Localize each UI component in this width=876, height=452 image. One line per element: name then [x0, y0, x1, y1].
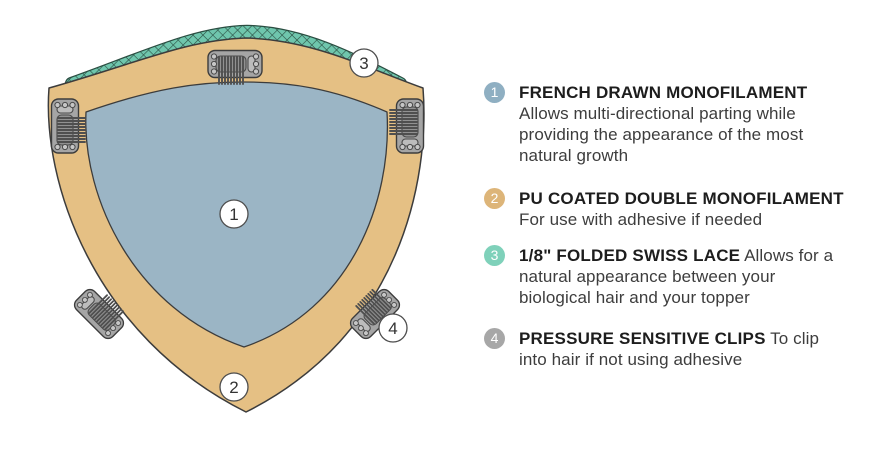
callout-3-number: 3: [359, 54, 368, 73]
legend-title-4: PRESSURE SENSITIVE CLIPS: [519, 329, 766, 348]
legend-description-1: Allows multi-directional parting while p…: [519, 104, 803, 165]
legend-text-1: FRENCH DRAWN MONOFILAMENT Allows multi-d…: [519, 82, 850, 166]
legend-item-pu-coated-monofilament: 2 PU COATED DOUBLE MONOFILAMENT For use …: [484, 188, 856, 230]
callout-3-swiss-lace: 3: [350, 49, 378, 77]
legend-badge-1: 1: [484, 82, 505, 103]
legend-description-2: For use with adhesive if needed: [519, 210, 762, 229]
legend: 1 FRENCH DRAWN MONOFILAMENT Allows multi…: [484, 82, 856, 370]
legend-title-1: FRENCH DRAWN MONOFILAMENT: [519, 82, 850, 103]
legend-item-folded-swiss-lace: 3 1/8" FOLDED SWISS LACE Allows for a na…: [484, 245, 856, 308]
topper-construction-page: 1 2 3 4 1 FRENCH DRAWN MONOFILAMENT Allo…: [0, 0, 876, 452]
legend-title-2: PU COATED DOUBLE MONOFILAMENT: [519, 188, 850, 209]
legend-text-4: PRESSURE SENSITIVE CLIPS To clip into ha…: [519, 328, 850, 370]
legend-text-3: 1/8" FOLDED SWISS LACE Allows for a natu…: [519, 245, 850, 308]
callout-2-pu-base: 2: [220, 373, 248, 401]
callout-4-clip: 4: [379, 314, 407, 342]
legend-badge-2: 2: [484, 188, 505, 209]
legend-item-french-drawn-monofilament: 1 FRENCH DRAWN MONOFILAMENT Allows multi…: [484, 82, 856, 166]
callout-2-number: 2: [229, 378, 238, 397]
callout-1-number: 1: [229, 205, 238, 224]
topper-base-diagram: 1 2 3 4: [0, 0, 470, 452]
legend-text-2: PU COATED DOUBLE MONOFILAMENT For use wi…: [519, 188, 850, 230]
legend-title-3: 1/8" FOLDED SWISS LACE: [519, 246, 740, 265]
legend-badge-3: 3: [484, 245, 505, 266]
topper-diagram-svg: 1 2 3 4: [0, 0, 470, 452]
legend-item-pressure-sensitive-clips: 4 PRESSURE SENSITIVE CLIPS To clip into …: [484, 328, 856, 370]
callout-1-monofilament: 1: [220, 200, 248, 228]
legend-badge-4: 4: [484, 328, 505, 349]
callout-4-number: 4: [388, 319, 397, 338]
